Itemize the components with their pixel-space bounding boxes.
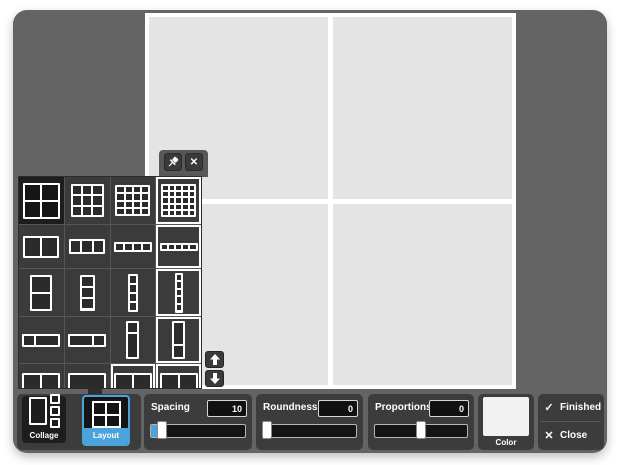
collage-tab-label: Collage [30, 431, 59, 443]
layout-thumbnail-icon [128, 274, 138, 312]
layout-thumbnail[interactable] [65, 317, 110, 363]
roundness-label: Roundness [263, 402, 317, 413]
color-section: Color [478, 394, 534, 450]
layout-thumbnail[interactable] [65, 177, 110, 224]
layout-thumbnail[interactable] [65, 269, 110, 316]
layout-thumbnail-icon [23, 236, 59, 258]
layout-thumbnail-icon [22, 373, 60, 389]
layout-thumbnail-icon [68, 334, 106, 347]
spacing-input[interactable] [207, 400, 247, 417]
layout-thumbnail-icon [71, 184, 104, 217]
layout-thumbnail-icon [160, 373, 198, 389]
layout-thumbnail-icon [114, 242, 152, 252]
layout-thumbnail[interactable] [65, 225, 110, 268]
layout-thumbnail-icon [22, 334, 60, 347]
roundness-slider[interactable] [262, 421, 357, 439]
layout-thumbnail[interactable] [156, 225, 201, 268]
layout-thumbnail[interactable] [19, 225, 64, 268]
close-label: Close [560, 430, 587, 441]
layout-thumbnail-icon [175, 273, 183, 313]
arrow-down-icon [209, 373, 221, 384]
layout-thumbnail[interactable] [19, 317, 64, 363]
spacing-slider[interactable] [150, 421, 246, 439]
spacing-label: Spacing [151, 402, 190, 413]
collage-tab-button[interactable]: Collage [22, 396, 66, 443]
layout-thumbnail-icon [161, 184, 196, 217]
layout-thumbnail[interactable] [65, 364, 110, 389]
layout-thumbnail-icon [115, 185, 150, 216]
collage-grid [149, 17, 512, 385]
layout-thumbnail[interactable] [156, 269, 201, 316]
check-icon: ✓ [538, 401, 560, 414]
layout-thumbnail-icon [126, 321, 139, 359]
pushpin-icon [167, 156, 179, 168]
pin-button[interactable] [164, 153, 182, 171]
layout-options-grid [19, 177, 201, 389]
collage-icon [29, 394, 60, 428]
layout-panel [18, 176, 202, 389]
spacing-slider-handle[interactable] [157, 421, 167, 439]
layout-thumbnail[interactable] [111, 225, 156, 268]
layout-thumbnail[interactable] [19, 177, 64, 224]
layout-thumbnail[interactable] [111, 317, 156, 363]
layout-thumbnail[interactable] [19, 269, 64, 316]
layout-thumbnail-icon [23, 183, 60, 219]
layout-thumbnail[interactable] [156, 177, 201, 224]
scroll-down-button[interactable] [205, 370, 224, 387]
proportions-input[interactable] [429, 400, 469, 417]
layout-thumbnail-icon [80, 275, 95, 311]
close-button[interactable]: ✕ Close [538, 422, 604, 449]
layout-thumbnail-icon [172, 321, 185, 359]
finished-button[interactable]: ✓ Finished [538, 394, 604, 421]
layout-tab-label: Layout [84, 428, 128, 444]
layout-thumbnail-icon [114, 373, 152, 389]
roundness-input[interactable] [318, 400, 358, 417]
layout-thumbnail[interactable] [111, 177, 156, 224]
layout-thumbnail[interactable] [111, 364, 156, 389]
roundness-slider-handle[interactable] [262, 421, 272, 439]
layout-thumbnail[interactable] [156, 317, 201, 363]
layout-thumbnail-icon [69, 239, 105, 254]
arrow-up-icon [209, 354, 221, 365]
collage-cell[interactable] [333, 17, 512, 199]
finished-label: Finished [560, 402, 601, 413]
proportions-label: Proportions [375, 402, 432, 413]
layout-thumbnail[interactable] [19, 364, 64, 389]
actions-section: ✓ Finished ✕ Close [538, 394, 604, 450]
layout-thumbnail-icon [30, 275, 52, 311]
layout-thumbnail[interactable] [111, 269, 156, 316]
spacing-section: Spacing [144, 394, 252, 450]
layout-grid-icon [92, 401, 121, 428]
collage-cell[interactable] [333, 204, 512, 386]
proportions-slider-handle[interactable] [416, 421, 426, 439]
roundness-slider-track [262, 424, 357, 438]
layout-tab-button[interactable]: Layout [82, 395, 130, 446]
layout-thumbnail-icon [68, 373, 106, 389]
close-icon: ✕ [190, 157, 198, 168]
layout-thumbnail-icon [160, 243, 198, 251]
proportions-slider[interactable] [374, 421, 468, 439]
roundness-section: Roundness [256, 394, 363, 450]
color-label: Color [478, 438, 534, 447]
layout-thumbnail[interactable] [156, 364, 201, 389]
scroll-up-button[interactable] [205, 351, 224, 368]
proportions-section: Proportions [368, 394, 474, 450]
panel-close-button[interactable]: ✕ [185, 153, 203, 171]
background-color-swatch[interactable] [483, 397, 529, 436]
toolbar-modes-section: Collage Layout [17, 394, 141, 450]
close-icon: ✕ [538, 429, 560, 442]
